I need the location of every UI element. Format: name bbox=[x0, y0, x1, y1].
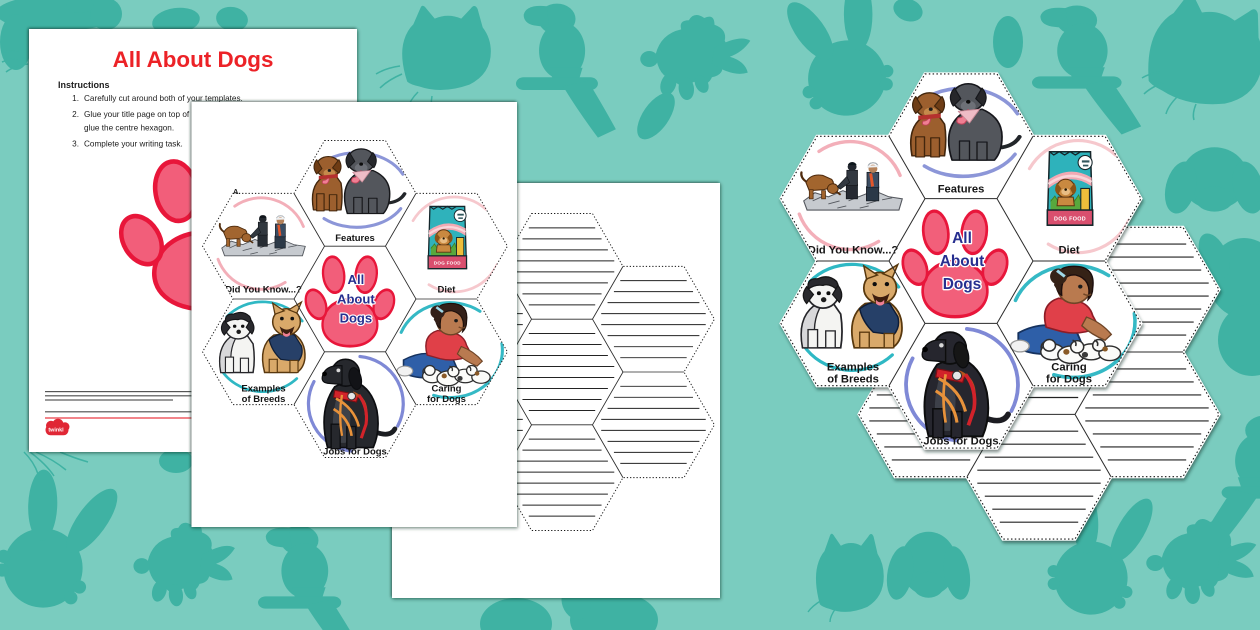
svg-text:2.: 2. bbox=[72, 110, 79, 119]
svg-text:Carefully cut around both of y: Carefully cut around both of your templa… bbox=[84, 94, 243, 103]
svg-text:twinkl: twinkl bbox=[48, 427, 64, 433]
svg-text:3.: 3. bbox=[72, 140, 79, 149]
svg-text:A.: A. bbox=[233, 187, 241, 196]
svg-text:1.: 1. bbox=[72, 94, 79, 103]
svg-text:glue the centre hexagon.: glue the centre hexagon. bbox=[84, 124, 174, 133]
svg-text:All About Dogs: All About Dogs bbox=[113, 47, 274, 72]
svg-text:Complete your writing task.: Complete your writing task. bbox=[84, 140, 183, 149]
svg-text:Instructions: Instructions bbox=[58, 80, 110, 90]
